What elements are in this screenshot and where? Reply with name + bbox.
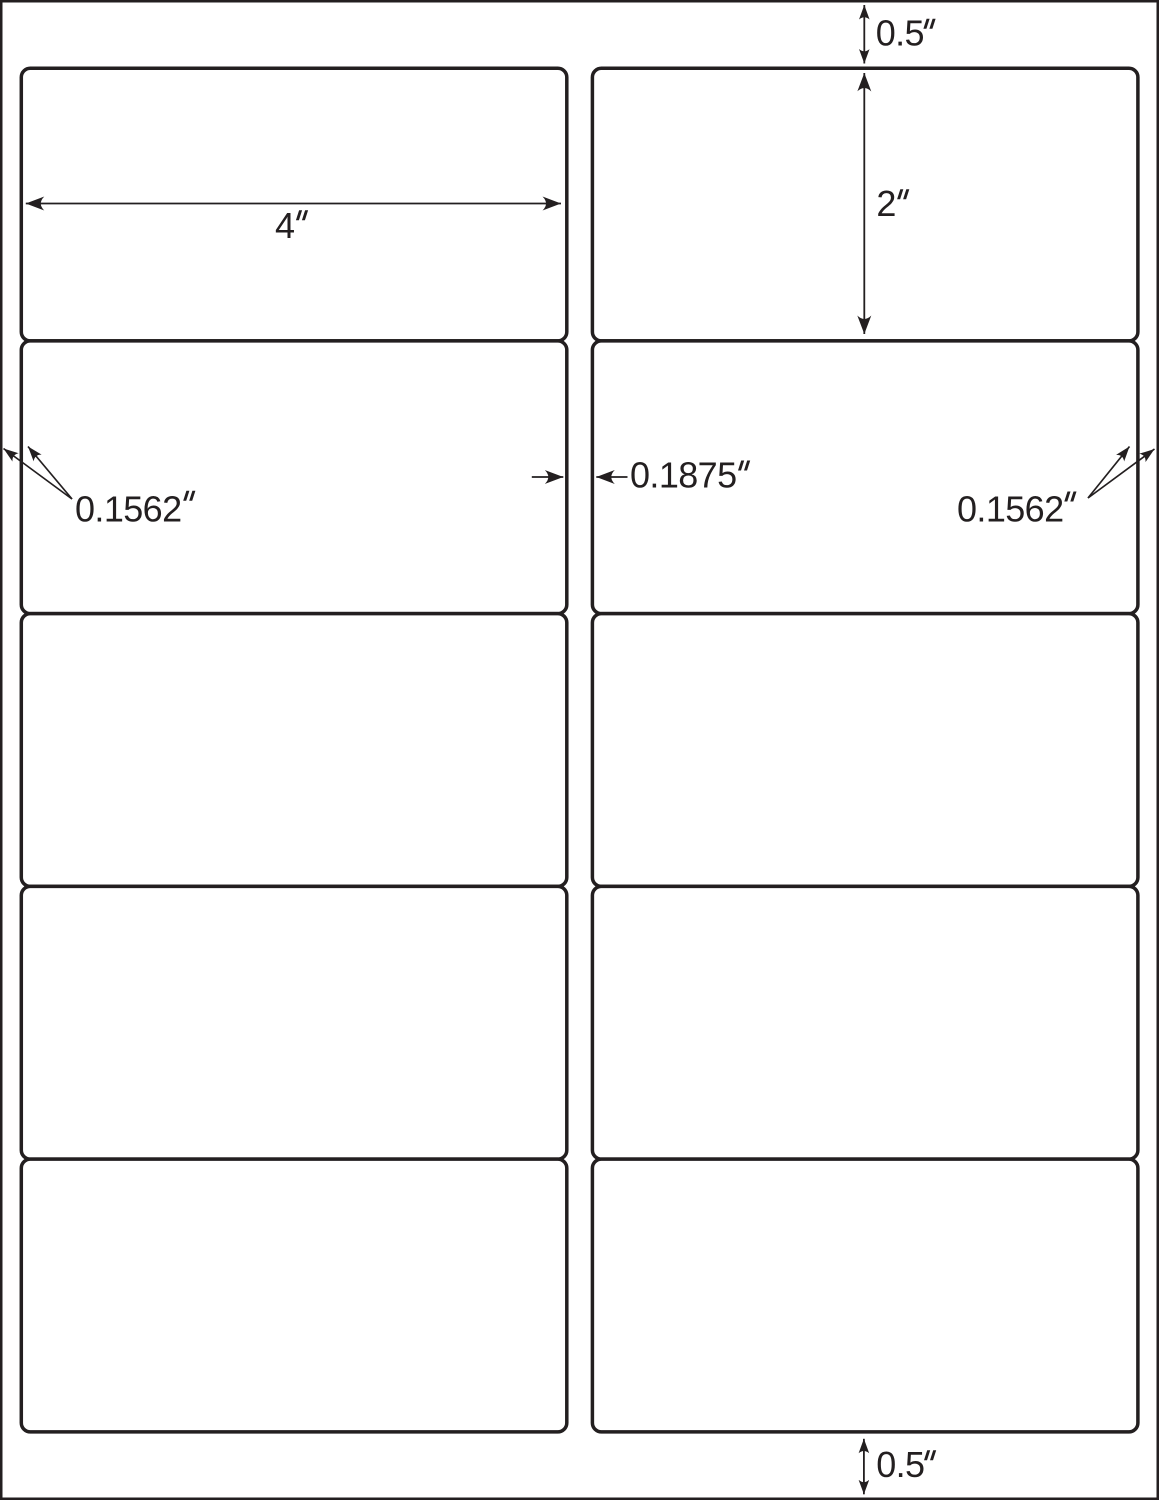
svg-text:0.5: 0.5	[876, 1444, 924, 1485]
svg-text:2: 2	[876, 183, 895, 224]
svg-text:0.1562: 0.1562	[957, 489, 1064, 530]
svg-text:0.1875: 0.1875	[630, 455, 737, 496]
svg-text:4: 4	[275, 205, 294, 246]
svg-text:0.5: 0.5	[876, 12, 924, 53]
svg-text:0.1562: 0.1562	[75, 489, 182, 530]
